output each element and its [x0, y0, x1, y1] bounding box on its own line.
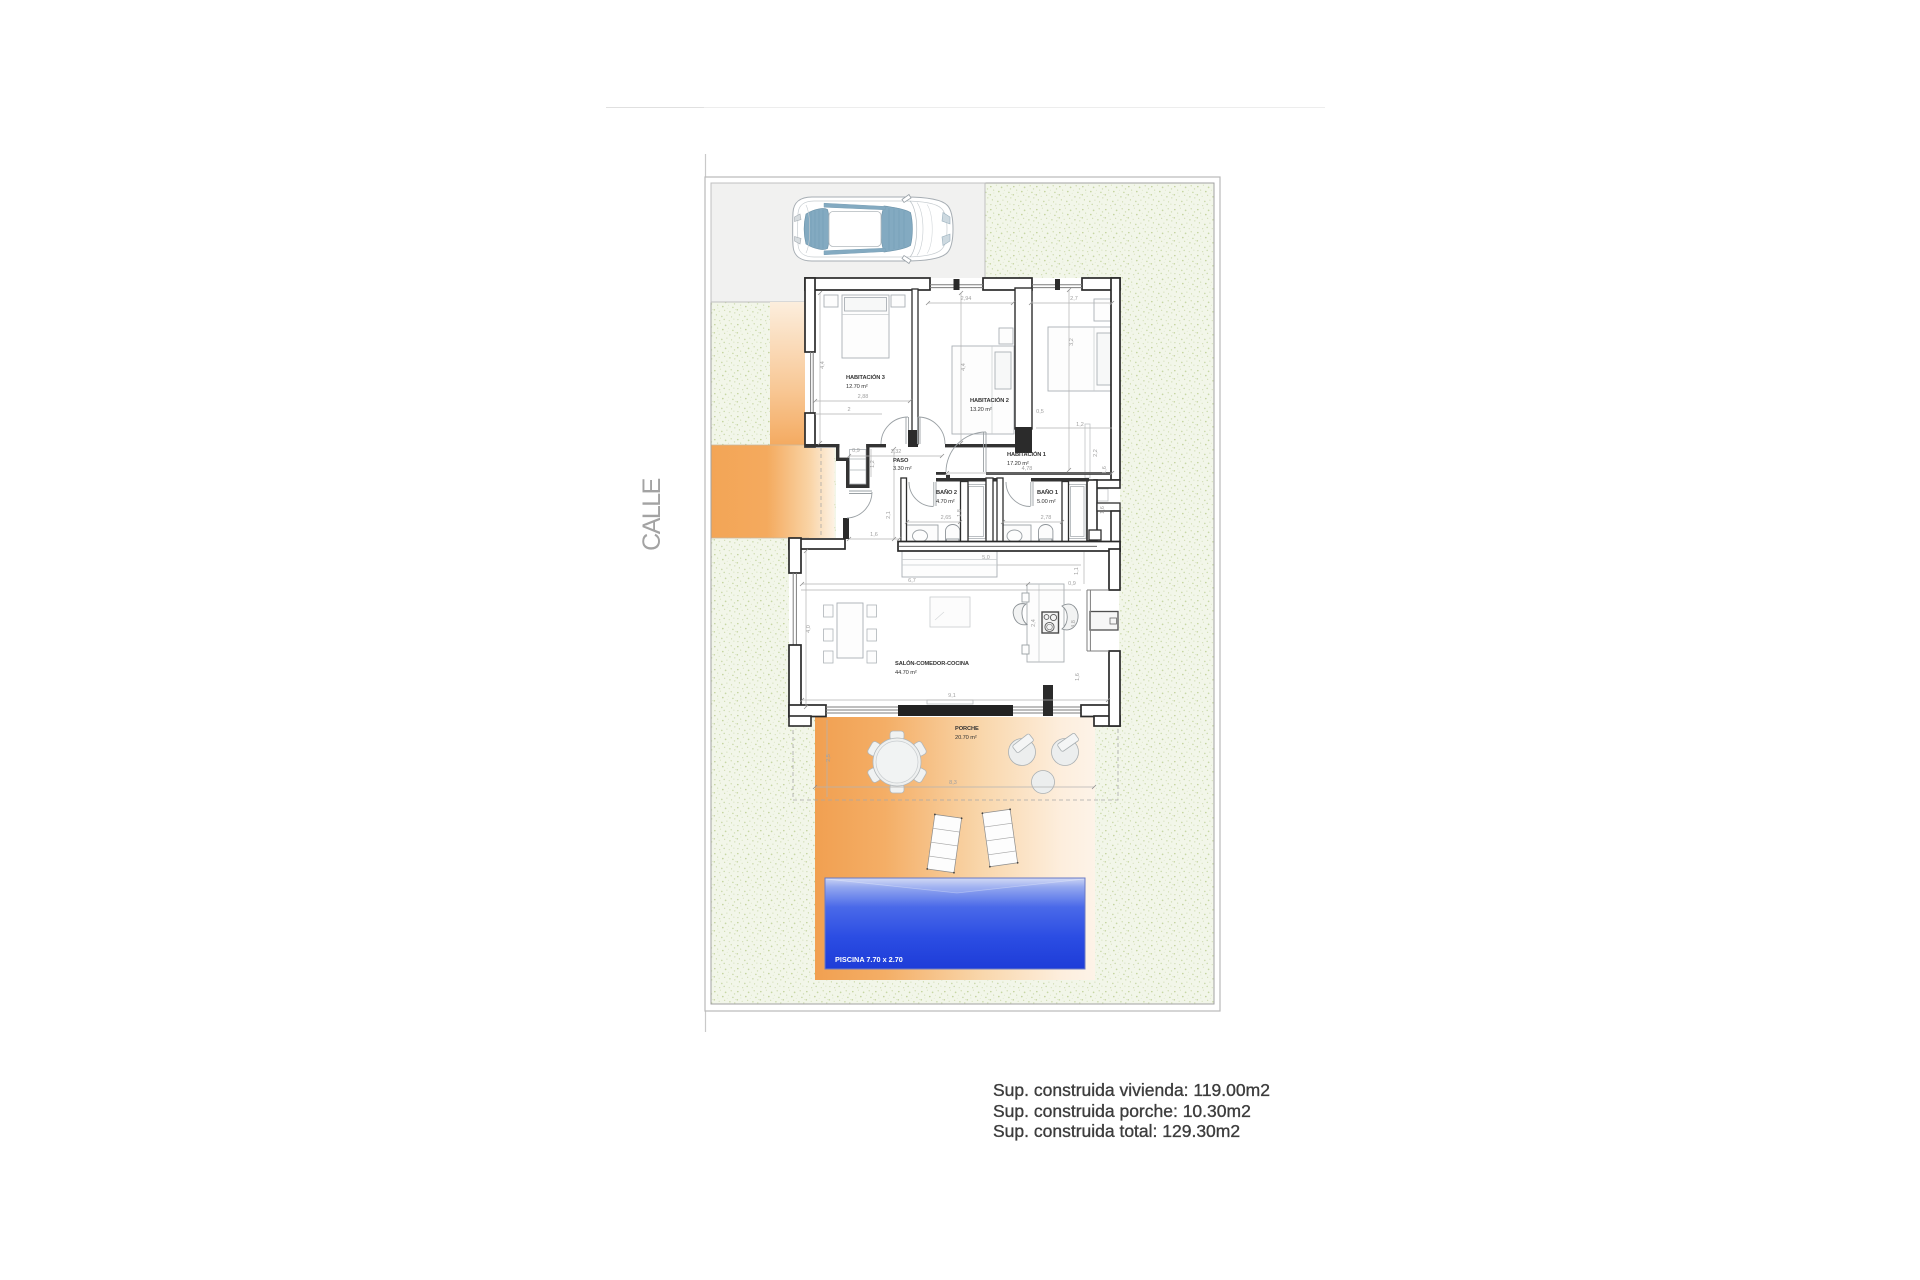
- svg-text:Sup. construida total: 129.30m: Sup. construida total: 129.30m2: [993, 1121, 1240, 1141]
- svg-text:1,2: 1,2: [1076, 422, 1084, 428]
- svg-text:1,6: 1,6: [1075, 673, 1081, 681]
- svg-text:1,6: 1,6: [1102, 466, 1108, 474]
- svg-text:Sup. construida porche: 10.30m: Sup. construida porche: 10.30m2: [993, 1101, 1251, 1121]
- svg-text:3,2: 3,2: [1069, 338, 1075, 346]
- svg-text:Sup. construida vivienda: 119.: Sup. construida vivienda: 119.00m2: [993, 1080, 1270, 1100]
- svg-text:CALLE: CALLE: [638, 478, 666, 551]
- svg-text:0,5: 0,5: [1036, 409, 1044, 415]
- svg-text:9,1: 9,1: [948, 693, 956, 699]
- svg-text:PASO: PASO: [893, 458, 909, 464]
- svg-text:6,7: 6,7: [908, 578, 916, 584]
- svg-text:4,4: 4,4: [961, 363, 967, 371]
- svg-text:2: 2: [847, 407, 850, 413]
- svg-text:1,8: 1,8: [957, 509, 963, 517]
- svg-text:5,0: 5,0: [982, 555, 990, 561]
- svg-text:2,4: 2,4: [1031, 619, 1037, 627]
- svg-text:HABITACIÓN 3: HABITACIÓN 3: [846, 373, 885, 381]
- svg-text:5.00 m²: 5.00 m²: [1037, 499, 1056, 505]
- svg-text:1,6: 1,6: [1100, 506, 1106, 514]
- svg-text:3.30 m²: 3.30 m²: [893, 466, 912, 472]
- svg-text:HABITACIÓN 1: HABITACIÓN 1: [1007, 450, 1046, 458]
- svg-text:1,1: 1,1: [1074, 567, 1080, 575]
- svg-text:2,1: 2,1: [886, 511, 892, 519]
- svg-text:0,9: 0,9: [1068, 581, 1076, 587]
- svg-text:BAÑO 1: BAÑO 1: [1037, 489, 1058, 496]
- svg-text:1,2: 1,2: [870, 460, 876, 468]
- svg-text:1,6: 1,6: [870, 532, 878, 538]
- svg-text:SALÓN-COMEDOR-COCINA: SALÓN-COMEDOR-COCINA: [895, 659, 969, 667]
- svg-text:8,3: 8,3: [949, 780, 957, 786]
- svg-text:12.70 m²: 12.70 m²: [846, 384, 868, 390]
- svg-text:4.70 m²: 4.70 m²: [936, 499, 955, 505]
- svg-text:2,94: 2,94: [961, 296, 972, 302]
- svg-text:20.70 m²: 20.70 m²: [955, 735, 977, 741]
- svg-text:4,8: 4,8: [1071, 620, 1077, 628]
- svg-text:PORCHE: PORCHE: [955, 726, 979, 732]
- svg-text:4,0: 4,0: [806, 625, 812, 633]
- svg-text:13.20 m²: 13.20 m²: [970, 407, 992, 413]
- svg-text:2,78: 2,78: [1041, 515, 1052, 521]
- svg-text:BAÑO 2: BAÑO 2: [936, 489, 957, 496]
- svg-text:0,9: 0,9: [852, 448, 860, 454]
- svg-text:2,2: 2,2: [1093, 449, 1099, 457]
- svg-text:HABITACIÓN 2: HABITACIÓN 2: [970, 396, 1009, 404]
- svg-text:PISCINA 7.70 x 2.70: PISCINA 7.70 x 2.70: [835, 955, 903, 964]
- svg-text:2,32: 2,32: [891, 449, 902, 455]
- svg-text:4,4: 4,4: [820, 361, 826, 369]
- svg-text:2,5: 2,5: [826, 754, 832, 762]
- svg-text:2,88: 2,88: [858, 394, 869, 400]
- svg-text:2,65: 2,65: [941, 515, 952, 521]
- svg-text:2,7: 2,7: [1070, 296, 1078, 302]
- svg-text:44.70 m²: 44.70 m²: [895, 670, 917, 676]
- svg-text:17.20 m²: 17.20 m²: [1007, 461, 1029, 467]
